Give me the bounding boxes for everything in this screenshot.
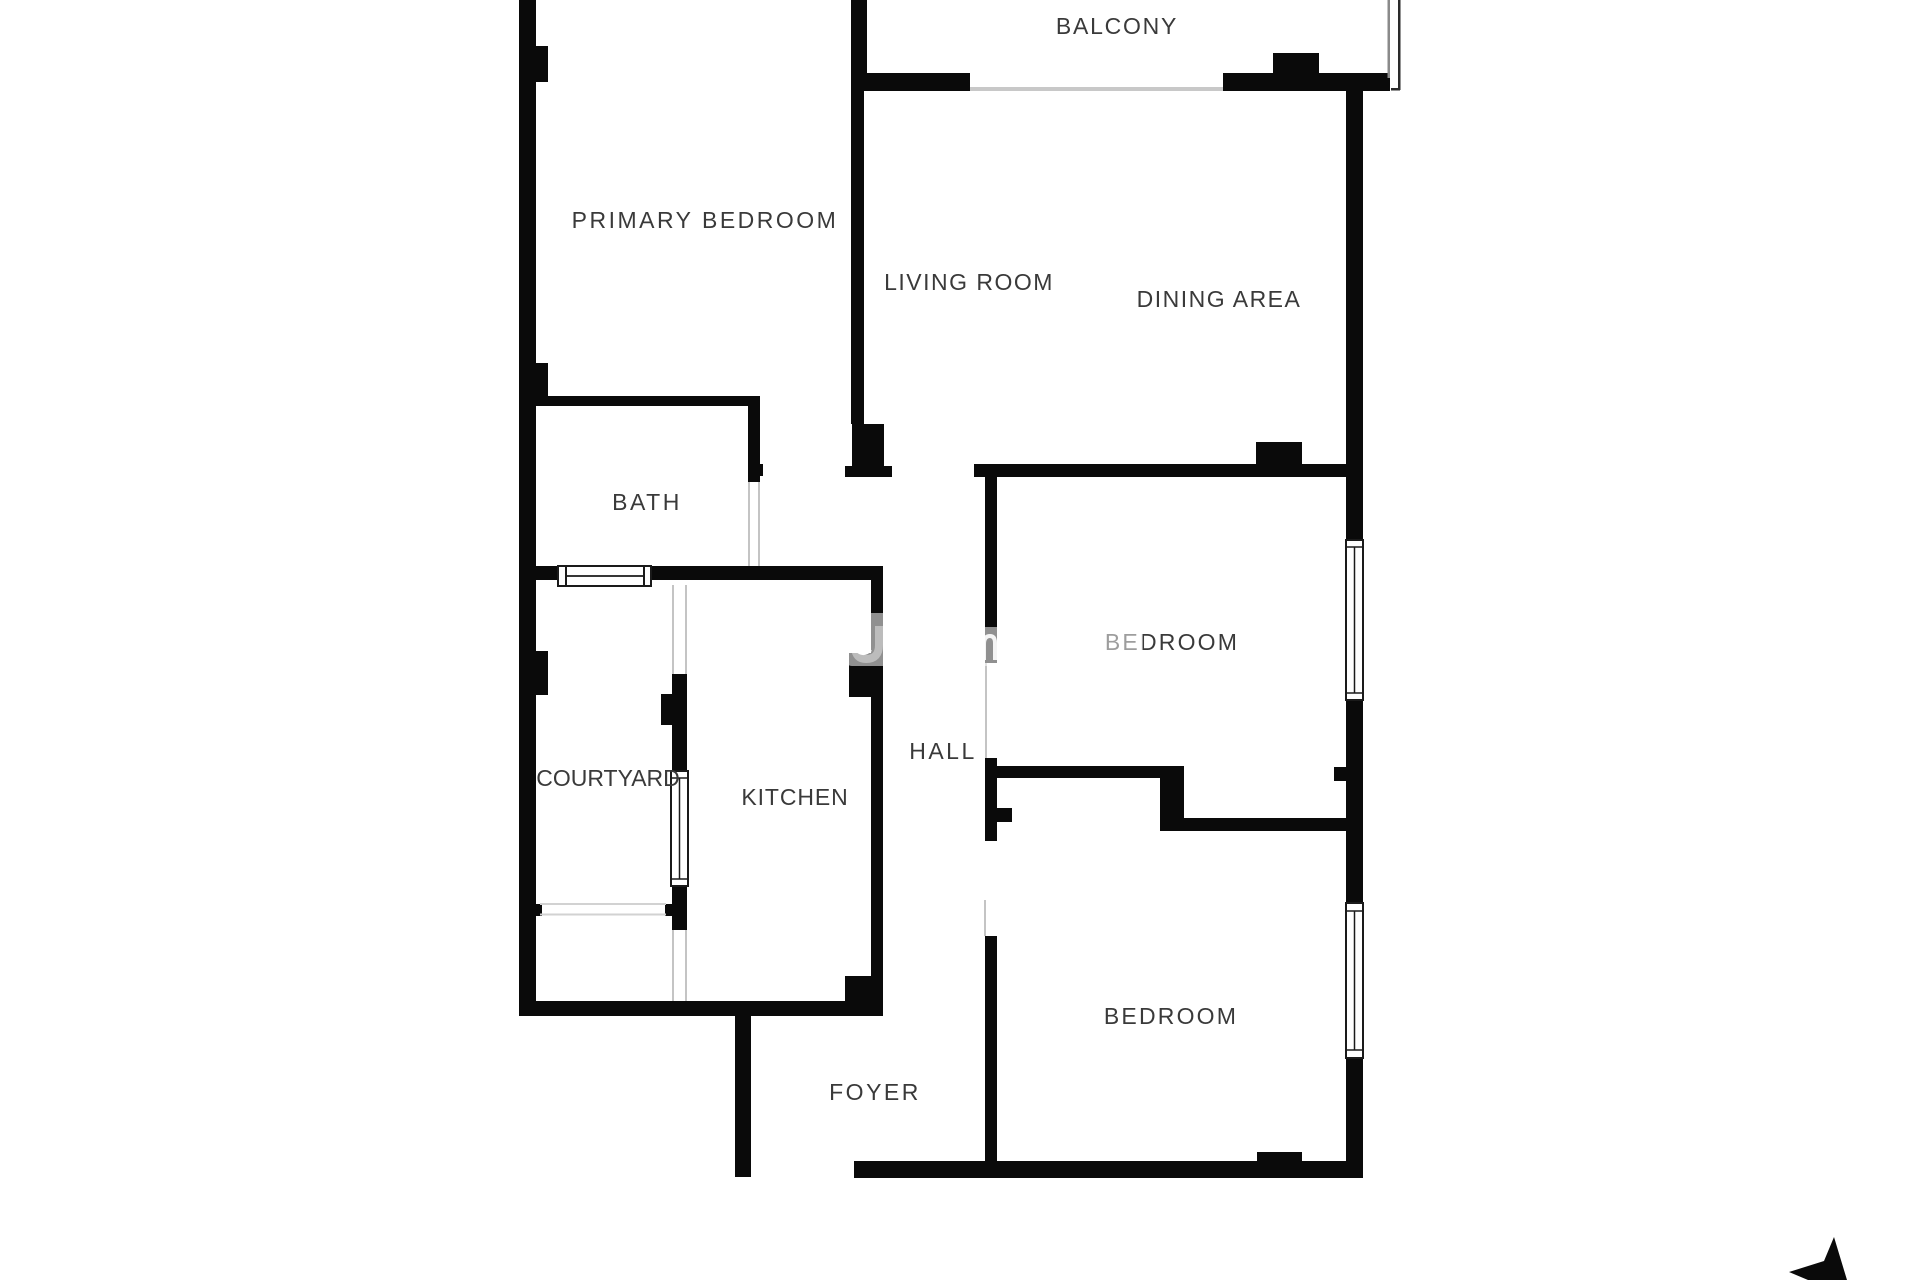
svg-text:LIVING ROOM: LIVING ROOM [884, 269, 1054, 295]
svg-text:PRIMARY BEDROOM: PRIMARY BEDROOM [572, 207, 839, 233]
svg-text:BEDROOM: BEDROOM [1104, 1003, 1238, 1029]
svg-text:KITCHEN: KITCHEN [741, 784, 848, 810]
svg-text:COURTYARD: COURTYARD [536, 765, 680, 791]
svg-text:DINING AREA: DINING AREA [1137, 286, 1302, 312]
svg-text:HALL: HALL [909, 738, 977, 764]
svg-text:FOYER: FOYER [829, 1079, 921, 1105]
svg-text:BATH: BATH [612, 489, 682, 515]
svg-text:BALCONY: BALCONY [1056, 13, 1178, 39]
